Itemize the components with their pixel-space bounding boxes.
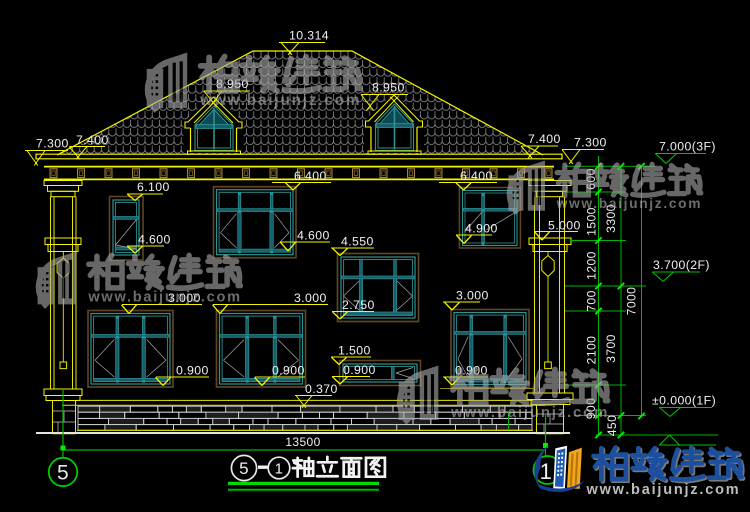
svg-text:0.900: 0.900	[343, 363, 376, 377]
svg-text:7.000(3F): 7.000(3F)	[659, 140, 716, 154]
svg-text:5: 5	[239, 459, 249, 478]
svg-text:www.baijunjz.com: www.baijunjz.com	[586, 482, 741, 498]
svg-text:www.baijunjz.com: www.baijunjz.com	[556, 196, 703, 211]
svg-text:2.750: 2.750	[342, 298, 375, 312]
svg-text:7.400: 7.400	[76, 133, 109, 147]
svg-text:4.600: 4.600	[297, 229, 330, 243]
svg-text:4.550: 4.550	[341, 235, 374, 249]
svg-text:8.950: 8.950	[372, 81, 405, 95]
svg-text:7.400: 7.400	[528, 132, 561, 146]
svg-text:3.000: 3.000	[456, 289, 489, 303]
svg-text:6.100: 6.100	[137, 180, 170, 194]
svg-text:6.400: 6.400	[460, 169, 493, 183]
svg-text:4.900: 4.900	[465, 222, 498, 236]
svg-text:2100: 2100	[585, 336, 599, 365]
svg-text:www.baijunjz.com: www.baijunjz.com	[450, 404, 609, 421]
svg-text:6.400: 6.400	[294, 169, 327, 183]
svg-text:7.300: 7.300	[36, 137, 69, 151]
svg-text:5.000: 5.000	[548, 219, 581, 233]
svg-text:1500: 1500	[585, 207, 599, 236]
svg-text:3.700(2F): 3.700(2F)	[653, 258, 710, 272]
svg-text:www.baijunjz.com: www.baijunjz.com	[199, 92, 361, 109]
svg-text:1: 1	[275, 461, 284, 478]
svg-text:7000: 7000	[625, 287, 639, 316]
svg-text:5: 5	[57, 462, 69, 485]
svg-text:1.500: 1.500	[338, 344, 371, 358]
svg-text:700: 700	[585, 290, 599, 312]
svg-text:±0.000(1F): ±0.000(1F)	[652, 394, 716, 408]
svg-text:13500: 13500	[285, 435, 320, 449]
svg-text:7.300: 7.300	[574, 136, 607, 150]
svg-text:0.900: 0.900	[176, 364, 209, 378]
svg-text:3700: 3700	[604, 334, 618, 363]
svg-text:0.370: 0.370	[305, 382, 338, 396]
svg-text:3.000: 3.000	[294, 291, 327, 305]
svg-text:1200: 1200	[585, 251, 599, 280]
svg-text:0.900: 0.900	[272, 364, 305, 378]
svg-text:4.600: 4.600	[138, 233, 171, 247]
svg-text:1: 1	[540, 459, 553, 484]
svg-text:10.314: 10.314	[289, 29, 329, 43]
svg-text:www.baijunjz.com: www.baijunjz.com	[87, 289, 241, 305]
